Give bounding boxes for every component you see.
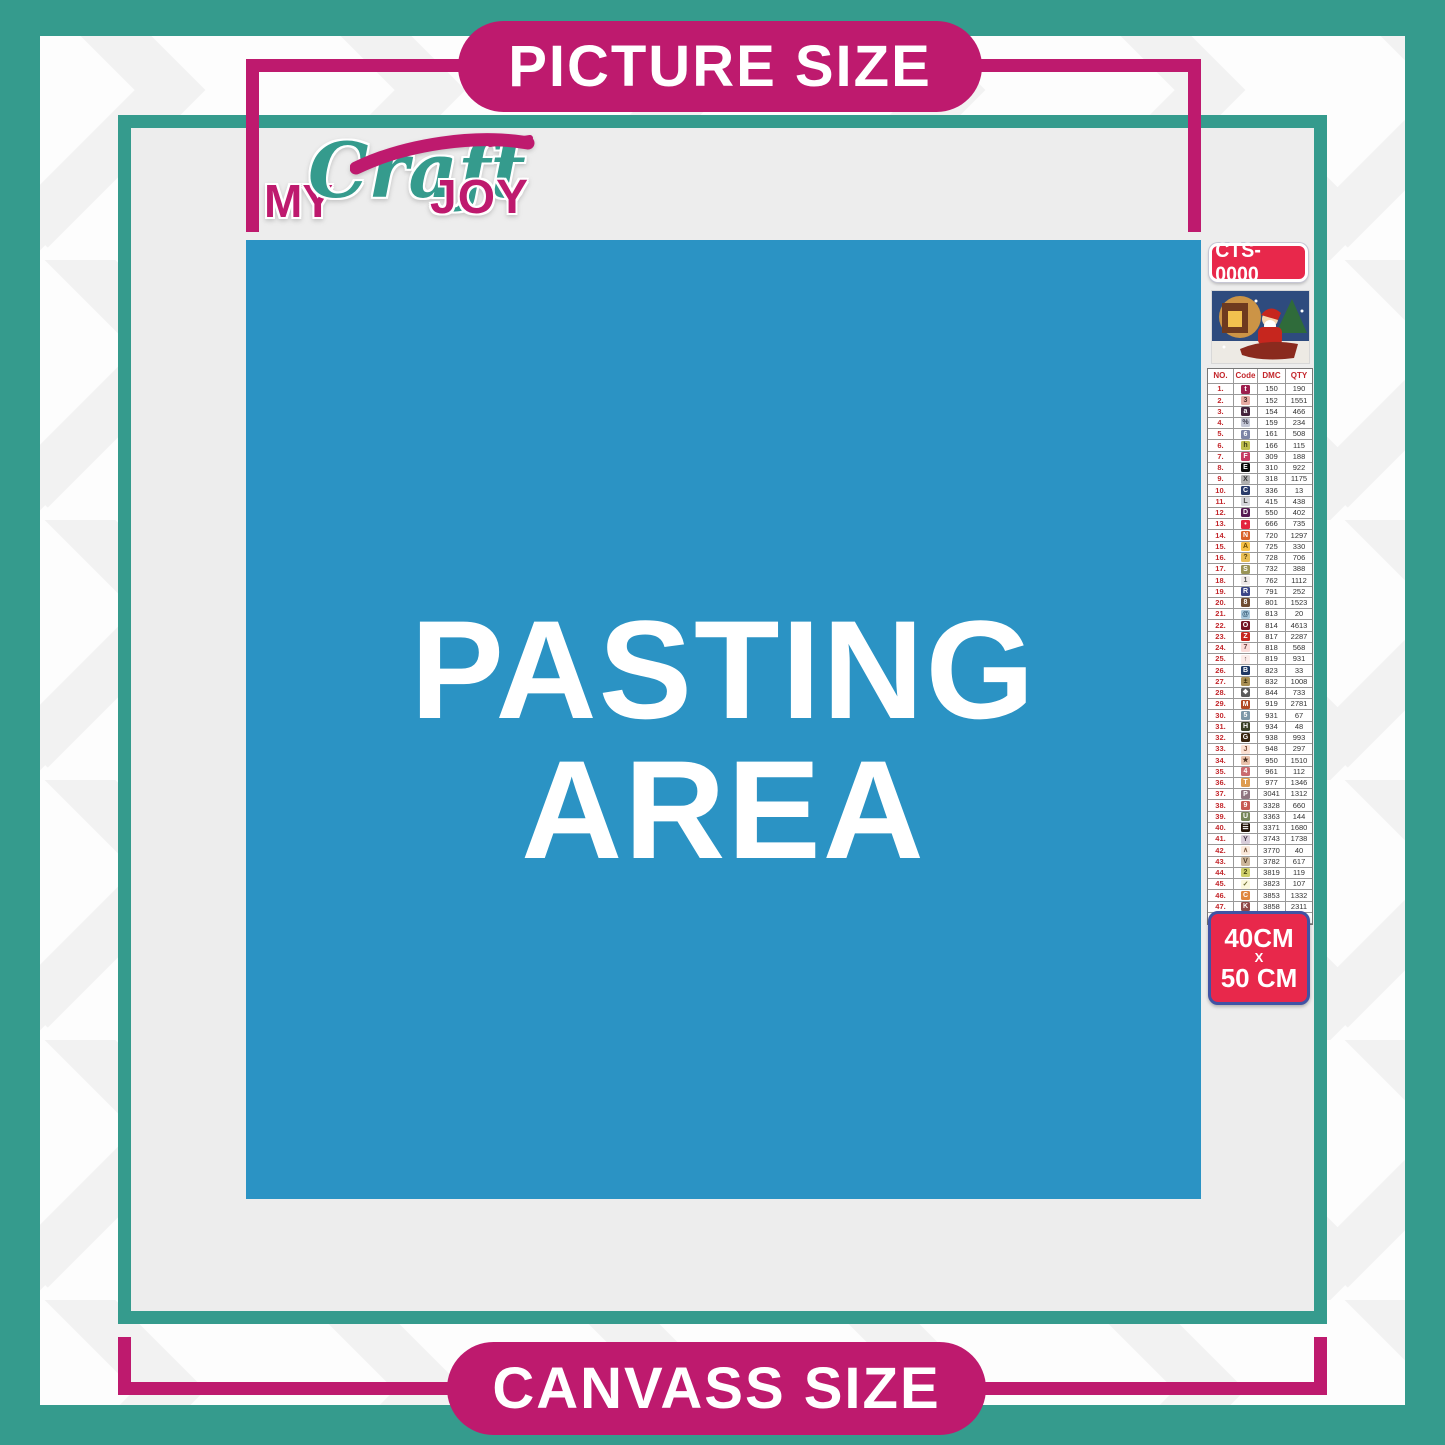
legend-row: 24.7818568 — [1208, 643, 1312, 654]
legend-code-cell: E — [1234, 463, 1258, 474]
legend-no-cell: 32. — [1208, 733, 1234, 744]
legend-row: 8.E310922 — [1208, 463, 1312, 474]
legend-qty-cell: 4613 — [1286, 620, 1312, 631]
legend-dmc-cell: 950 — [1258, 755, 1286, 766]
canvass-size-stub-right — [1314, 1337, 1327, 1395]
picture-size-banner: PICTURE SIZE — [458, 21, 982, 112]
outer-frame-left — [0, 0, 40, 1445]
symbol-chip: h — [1241, 441, 1250, 450]
legend-dmc-cell: 814 — [1258, 620, 1286, 631]
legend-dmc-cell: 666 — [1258, 519, 1286, 530]
legend-dmc-cell: 961 — [1258, 767, 1286, 778]
legend-qty-cell: 1112 — [1286, 575, 1312, 586]
symbol-chip: a — [1241, 407, 1250, 416]
canvass-size-line-left — [120, 1382, 449, 1395]
legend-qty-cell: 330 — [1286, 542, 1312, 553]
legend-qty-cell: 190 — [1286, 384, 1312, 395]
symbol-chip: M — [1241, 700, 1250, 709]
legend-no-cell: 31. — [1208, 722, 1234, 733]
legend-row: 12.D550402 — [1208, 508, 1312, 519]
legend-code-cell: ± — [1234, 677, 1258, 688]
legend-no-cell: 18. — [1208, 575, 1234, 586]
canvas-template-poster: MY Craft JOY PASTING AREA PICTURE SIZE C… — [0, 0, 1445, 1445]
legend-dmc-cell: 550 — [1258, 508, 1286, 519]
legend-row: 41.Y37431738 — [1208, 834, 1312, 845]
legend-no-cell: 29. — [1208, 699, 1234, 710]
product-code-text: CTS-0000 — [1215, 239, 1301, 287]
legend-row: 23.Z8172287 — [1208, 632, 1312, 643]
legend-no-cell: 13. — [1208, 519, 1234, 530]
legend-header-cell: NO. — [1208, 369, 1234, 384]
legend-dmc-cell: 3371 — [1258, 823, 1286, 834]
legend-qty-cell: 2287 — [1286, 632, 1312, 643]
legend-dmc-cell: 3853 — [1258, 890, 1286, 901]
legend-qty-cell: 107 — [1286, 879, 1312, 890]
symbol-chip: G — [1241, 733, 1250, 742]
canvass-size-banner: CANVASS SIZE — [447, 1342, 986, 1435]
legend-qty-cell: 1175 — [1286, 474, 1312, 485]
symbol-chip: @ — [1241, 610, 1250, 619]
legend-code-cell: R — [1234, 587, 1258, 598]
legend-row: 28.❖844733 — [1208, 688, 1312, 699]
legend-dmc-cell: 844 — [1258, 688, 1286, 699]
picture-size-line-left — [252, 59, 460, 72]
legend-code-cell: ☰ — [1234, 823, 1258, 834]
legend-qty-cell: 568 — [1286, 643, 1312, 654]
legend-code-cell: • — [1234, 519, 1258, 530]
legend-qty-cell: 1332 — [1286, 890, 1312, 901]
legend-code-cell: J — [1234, 744, 1258, 755]
legend-row: 5.6161508 — [1208, 429, 1312, 440]
symbol-chip: ☰ — [1241, 823, 1250, 832]
legend-row: 42.∧377040 — [1208, 845, 1312, 856]
symbol-chip: A — [1241, 542, 1250, 551]
legend-row: 7.F309188 — [1208, 452, 1312, 463]
legend-code-cell: V — [1234, 857, 1258, 868]
legend-row: 9.X3181175 — [1208, 474, 1312, 485]
legend-code-cell: ✓ — [1234, 879, 1258, 890]
symbol-chip: O — [1241, 621, 1250, 630]
legend-no-cell: 12. — [1208, 508, 1234, 519]
legend-dmc-cell: 823 — [1258, 665, 1286, 676]
legend-no-cell: 34. — [1208, 755, 1234, 766]
legend-dmc-cell: 154 — [1258, 407, 1286, 418]
legend-no-cell: 5. — [1208, 429, 1234, 440]
legend-qty-cell: 297 — [1286, 744, 1312, 755]
legend-qty-cell: 1008 — [1286, 677, 1312, 688]
legend-code-cell: H — [1234, 722, 1258, 733]
legend-row: 6.h166115 — [1208, 440, 1312, 451]
legend-row: 22.O8144613 — [1208, 620, 1312, 631]
symbol-chip: ↑ — [1241, 655, 1250, 664]
legend-no-cell: 11. — [1208, 497, 1234, 508]
legend-no-cell: 46. — [1208, 890, 1234, 901]
legend-header-cell: QTY — [1286, 369, 1312, 384]
legend-no-cell: 38. — [1208, 800, 1234, 811]
legend-dmc-cell: 938 — [1258, 733, 1286, 744]
legend-dmc-cell: 819 — [1258, 654, 1286, 665]
legend-row: 38.93328660 — [1208, 800, 1312, 811]
symbol-chip: X — [1241, 475, 1250, 484]
symbol-chip: % — [1241, 418, 1250, 427]
symbol-chip: H — [1241, 722, 1250, 731]
symbol-chip: ? — [1241, 553, 1250, 562]
legend-qty-cell: 617 — [1286, 857, 1312, 868]
symbol-chip: ★ — [1241, 756, 1250, 765]
legend-dmc-cell: 732 — [1258, 564, 1286, 575]
legend-row: 29.M9192781 — [1208, 699, 1312, 710]
legend-row: 16.?728706 — [1208, 553, 1312, 564]
symbol-chip: 9 — [1241, 801, 1250, 810]
symbol-chip: • — [1241, 520, 1250, 529]
legend-qty-cell: 1346 — [1286, 778, 1312, 789]
legend-qty-cell: 33 — [1286, 665, 1312, 676]
legend-qty-cell: 402 — [1286, 508, 1312, 519]
legend-row: 37.P30411312 — [1208, 789, 1312, 800]
legend-dmc-cell: 159 — [1258, 418, 1286, 429]
legend-no-cell: 19. — [1208, 587, 1234, 598]
legend-row: 14.N7201297 — [1208, 530, 1312, 541]
legend-no-cell: 37. — [1208, 789, 1234, 800]
legend-no-cell: 36. — [1208, 778, 1234, 789]
legend-dmc-cell: 3823 — [1258, 879, 1286, 890]
picture-size-line-right — [980, 59, 1201, 72]
legend-no-cell: 10. — [1208, 485, 1234, 496]
legend-no-cell: 21. — [1208, 609, 1234, 620]
legend-no-cell: 41. — [1208, 834, 1234, 845]
legend-dmc-cell: 166 — [1258, 440, 1286, 451]
legend-qty-cell: 1297 — [1286, 530, 1312, 541]
legend-dmc-cell: 310 — [1258, 463, 1286, 474]
legend-row: 2.31521551 — [1208, 395, 1312, 406]
legend-row: 44.23819119 — [1208, 868, 1312, 879]
legend-no-cell: 7. — [1208, 452, 1234, 463]
legend-no-cell: 9. — [1208, 474, 1234, 485]
legend-row: 33.J948297 — [1208, 744, 1312, 755]
legend-qty-cell: 252 — [1286, 587, 1312, 598]
legend-dmc-cell: 3770 — [1258, 845, 1286, 856]
legend-qty-cell: 1551 — [1286, 395, 1312, 406]
legend-row: 1.t150190 — [1208, 384, 1312, 395]
legend-row: 17.S732388 — [1208, 564, 1312, 575]
legend-no-cell: 44. — [1208, 868, 1234, 879]
legend-qty-cell: 1312 — [1286, 789, 1312, 800]
logo-brush-swoosh-icon — [350, 130, 536, 176]
legend-no-cell: 39. — [1208, 812, 1234, 823]
legend-no-cell: 15. — [1208, 542, 1234, 553]
legend-code-cell: ❖ — [1234, 688, 1258, 699]
symbol-chip: 7 — [1241, 643, 1250, 652]
legend-code-cell: ∧ — [1234, 845, 1258, 856]
legend-dmc-cell: 3782 — [1258, 857, 1286, 868]
legend-dmc-cell: 832 — [1258, 677, 1286, 688]
symbol-chip: K — [1241, 902, 1250, 911]
legend-qty-cell: 188 — [1286, 452, 1312, 463]
symbol-chip: U — [1241, 812, 1250, 821]
legend-row: 31.H93448 — [1208, 722, 1312, 733]
legend-code-cell: 3 — [1234, 395, 1258, 406]
symbol-chip: C — [1241, 486, 1250, 495]
symbol-chip: L — [1241, 497, 1250, 506]
legend-dmc-cell: 3328 — [1258, 800, 1286, 811]
legend-qty-cell: 438 — [1286, 497, 1312, 508]
legend-code-cell: @ — [1234, 609, 1258, 620]
legend-no-cell: 35. — [1208, 767, 1234, 778]
legend-row: 18.17621112 — [1208, 575, 1312, 586]
legend-qty-cell: 144 — [1286, 812, 1312, 823]
legend-dmc-cell: 150 — [1258, 384, 1286, 395]
legend-code-cell: S — [1234, 564, 1258, 575]
symbol-chip: B — [1241, 666, 1250, 675]
size-badge: 40CM X 50 CM — [1208, 911, 1310, 1005]
symbol-chip: F — [1241, 452, 1250, 461]
legend-no-cell: 14. — [1208, 530, 1234, 541]
legend-row: 3.a154466 — [1208, 407, 1312, 418]
legend-qty-cell: 67 — [1286, 710, 1312, 721]
legend-row: 15.A725330 — [1208, 542, 1312, 553]
legend-row: 27.±8321008 — [1208, 677, 1312, 688]
legend-dmc-cell: 818 — [1258, 643, 1286, 654]
symbol-chip: 5 — [1241, 711, 1250, 720]
legend-dmc-cell: 948 — [1258, 744, 1286, 755]
legend-code-cell: 7 — [1234, 643, 1258, 654]
symbol-chip: T — [1241, 778, 1250, 787]
legend-dmc-cell: 801 — [1258, 598, 1286, 609]
legend-code-cell: % — [1234, 418, 1258, 429]
legend-row: 36.T9771346 — [1208, 778, 1312, 789]
legend-code-cell: ? — [1234, 553, 1258, 564]
legend-dmc-cell: 309 — [1258, 452, 1286, 463]
legend-dmc-cell: 336 — [1258, 485, 1286, 496]
legend-qty-cell: 48 — [1286, 722, 1312, 733]
legend-row: 30.593167 — [1208, 710, 1312, 721]
legend-row: 43.V3782617 — [1208, 857, 1312, 868]
legend-code-cell: G — [1234, 733, 1258, 744]
logo-text-joy: JOY — [430, 170, 529, 225]
legend-qty-cell: 234 — [1286, 418, 1312, 429]
legend-dmc-cell: 3819 — [1258, 868, 1286, 879]
symbol-chip: 4 — [1241, 767, 1250, 776]
legend-qty-cell: 20 — [1286, 609, 1312, 620]
legend-code-cell: a — [1234, 407, 1258, 418]
legend-header-cell: Code — [1234, 369, 1258, 384]
legend-no-cell: 3. — [1208, 407, 1234, 418]
symbol-chip: ✓ — [1241, 880, 1250, 889]
legend-dmc-cell: 934 — [1258, 722, 1286, 733]
symbol-chip: Z — [1241, 632, 1250, 641]
legend-row: 26.B82333 — [1208, 665, 1312, 676]
legend-no-cell: 45. — [1208, 879, 1234, 890]
legend-header-cell: DMC — [1258, 369, 1286, 384]
legend-row: 13.•666735 — [1208, 519, 1312, 530]
legend-no-cell: 25. — [1208, 654, 1234, 665]
symbol-chip: S — [1241, 565, 1250, 574]
legend-code-cell: h — [1234, 440, 1258, 451]
symbol-chip: N — [1241, 531, 1250, 540]
legend-row: 11.L415438 — [1208, 497, 1312, 508]
legend-code-cell: X — [1234, 474, 1258, 485]
legend-dmc-cell: 318 — [1258, 474, 1286, 485]
legend-row: 45.✓3823107 — [1208, 879, 1312, 890]
legend-qty-cell: 2781 — [1286, 699, 1312, 710]
legend-no-cell: 40. — [1208, 823, 1234, 834]
pasting-area-label-line2: AREA — [521, 740, 926, 880]
legend-no-cell: 27. — [1208, 677, 1234, 688]
legend-qty-cell: 922 — [1286, 463, 1312, 474]
symbol-chip: 6 — [1241, 430, 1250, 439]
legend-row: 35.4961112 — [1208, 767, 1312, 778]
legend-qty-cell: 660 — [1286, 800, 1312, 811]
legend-dmc-cell: 813 — [1258, 609, 1286, 620]
legend-no-cell: 17. — [1208, 564, 1234, 575]
legend-no-cell: 23. — [1208, 632, 1234, 643]
legend-header-row: NO.CodeDMCQTY — [1208, 369, 1312, 384]
symbol-chip: V — [1241, 857, 1250, 866]
brand-logo: MY Craft JOY — [262, 134, 524, 234]
symbol-chip: ∧ — [1241, 846, 1250, 855]
legend-no-cell: 26. — [1208, 665, 1234, 676]
legend-code-cell: Y — [1234, 834, 1258, 845]
legend-dmc-cell: 415 — [1258, 497, 1286, 508]
symbol-chip: ± — [1241, 677, 1250, 686]
symbol-chip: E — [1241, 463, 1250, 472]
legend-code-cell: 8 — [1234, 598, 1258, 609]
legend-code-cell: ★ — [1234, 755, 1258, 766]
legend-dmc-cell: 919 — [1258, 699, 1286, 710]
legend-no-cell: 33. — [1208, 744, 1234, 755]
pasting-area-label-line1: PASTING — [411, 600, 1037, 740]
color-legend-table: NO.CodeDMCQTY1.t1501902.315215513.a15446… — [1207, 368, 1313, 925]
legend-code-cell: 5 — [1234, 710, 1258, 721]
symbol-chip: C — [1241, 891, 1250, 900]
legend-no-cell: 6. — [1208, 440, 1234, 451]
legend-dmc-cell: 817 — [1258, 632, 1286, 643]
legend-code-cell: 2 — [1234, 868, 1258, 879]
symbol-chip: ❖ — [1241, 688, 1250, 697]
legend-no-cell: 43. — [1208, 857, 1234, 868]
legend-qty-cell: 466 — [1286, 407, 1312, 418]
legend-qty-cell: 119 — [1286, 868, 1312, 879]
legend-no-cell: 22. — [1208, 620, 1234, 631]
legend-dmc-cell: 728 — [1258, 553, 1286, 564]
legend-row: 40.☰33711680 — [1208, 823, 1312, 834]
legend-code-cell: F — [1234, 452, 1258, 463]
legend-dmc-cell: 161 — [1258, 429, 1286, 440]
legend-row: 39.U3363144 — [1208, 812, 1312, 823]
legend-qty-cell: 388 — [1286, 564, 1312, 575]
legend-dmc-cell: 3041 — [1258, 789, 1286, 800]
canvass-size-line-right — [984, 1382, 1327, 1395]
legend-row: 20.88011523 — [1208, 598, 1312, 609]
legend-row: 34.★9501510 — [1208, 755, 1312, 766]
legend-code-cell: T — [1234, 778, 1258, 789]
legend-dmc-cell: 720 — [1258, 530, 1286, 541]
canvass-size-stub-left — [118, 1337, 131, 1395]
legend-code-cell: M — [1234, 699, 1258, 710]
legend-no-cell: 42. — [1208, 845, 1234, 856]
legend-qty-cell: 735 — [1286, 519, 1312, 530]
picture-size-stub-right — [1188, 59, 1201, 232]
symbol-chip: t — [1241, 385, 1250, 394]
legend-no-cell: 20. — [1208, 598, 1234, 609]
legend-dmc-cell: 977 — [1258, 778, 1286, 789]
legend-no-cell: 24. — [1208, 643, 1234, 654]
legend-row: 46.C38531332 — [1208, 890, 1312, 901]
symbol-chip: 8 — [1241, 598, 1250, 607]
legend-dmc-cell: 3363 — [1258, 812, 1286, 823]
legend-dmc-cell: 762 — [1258, 575, 1286, 586]
legend-code-cell: L — [1234, 497, 1258, 508]
legend-qty-cell: 115 — [1286, 440, 1312, 451]
legend-qty-cell: 706 — [1286, 553, 1312, 564]
symbol-chip: D — [1241, 508, 1250, 517]
legend-no-cell: 28. — [1208, 688, 1234, 699]
legend-dmc-cell: 931 — [1258, 710, 1286, 721]
legend-code-cell: C — [1234, 485, 1258, 496]
symbol-chip: P — [1241, 790, 1250, 799]
symbol-chip: J — [1241, 745, 1250, 754]
legend-code-cell: 4 — [1234, 767, 1258, 778]
symbol-chip: Y — [1241, 835, 1250, 844]
legend-qty-cell: 40 — [1286, 845, 1312, 856]
legend-code-cell: 9 — [1234, 800, 1258, 811]
legend-row: 10.C33613 — [1208, 485, 1312, 496]
legend-no-cell: 1. — [1208, 384, 1234, 395]
legend-code-cell: 6 — [1234, 429, 1258, 440]
legend-code-cell: t — [1234, 384, 1258, 395]
legend-qty-cell: 931 — [1286, 654, 1312, 665]
legend-code-cell: C — [1234, 890, 1258, 901]
legend-code-cell: D — [1234, 508, 1258, 519]
legend-qty-cell: 1680 — [1286, 823, 1312, 834]
legend-code-cell: B — [1234, 665, 1258, 676]
pasting-area: PASTING AREA — [246, 240, 1201, 1199]
product-code-badge: CTS-0000 — [1209, 243, 1308, 282]
design-thumbnail-image — [1212, 291, 1309, 363]
legend-row: 4.%159234 — [1208, 418, 1312, 429]
legend-dmc-cell: 152 — [1258, 395, 1286, 406]
outer-frame-right — [1405, 0, 1445, 1445]
legend-code-cell: O — [1234, 620, 1258, 631]
legend-no-cell: 16. — [1208, 553, 1234, 564]
legend-row: 32.G938993 — [1208, 733, 1312, 744]
legend-no-cell: 4. — [1208, 418, 1234, 429]
size-badge-height: 50 CM — [1221, 965, 1298, 991]
legend-row: 25.↑819931 — [1208, 654, 1312, 665]
legend-qty-cell: 1738 — [1286, 834, 1312, 845]
picture-size-stub-left — [246, 59, 259, 232]
legend-qty-cell: 508 — [1286, 429, 1312, 440]
legend-qty-cell: 993 — [1286, 733, 1312, 744]
legend-dmc-cell: 791 — [1258, 587, 1286, 598]
legend-code-cell: Z — [1234, 632, 1258, 643]
legend-qty-cell: 1523 — [1286, 598, 1312, 609]
size-badge-width: 40CM — [1224, 925, 1293, 951]
legend-qty-cell: 112 — [1286, 767, 1312, 778]
legend-row: 21.@81320 — [1208, 609, 1312, 620]
legend-code-cell: U — [1234, 812, 1258, 823]
symbol-chip: 3 — [1241, 396, 1250, 405]
legend-code-cell: 1 — [1234, 575, 1258, 586]
legend-qty-cell: 13 — [1286, 485, 1312, 496]
legend-code-cell: N — [1234, 530, 1258, 541]
symbol-chip: 1 — [1241, 576, 1250, 585]
legend-dmc-cell: 3743 — [1258, 834, 1286, 845]
legend-dmc-cell: 725 — [1258, 542, 1286, 553]
legend-no-cell: 30. — [1208, 710, 1234, 721]
legend-qty-cell: 733 — [1286, 688, 1312, 699]
legend-qty-cell: 1510 — [1286, 755, 1312, 766]
